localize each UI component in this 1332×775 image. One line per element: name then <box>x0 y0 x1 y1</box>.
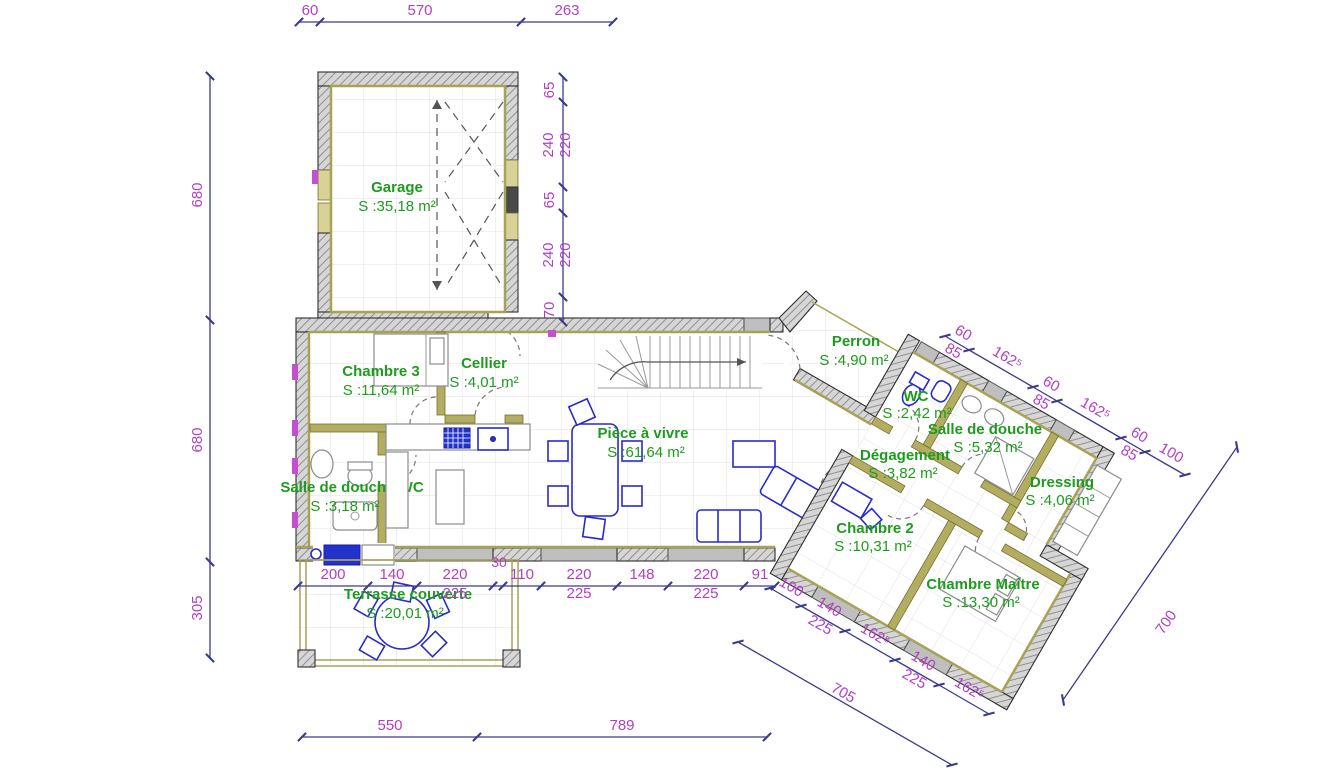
perron-area-label: S :4,90 m² <box>819 352 888 369</box>
dim-b-789: 789 <box>609 717 634 734</box>
dim-s-91: 91 <box>752 566 769 583</box>
garage-west-window-1 <box>318 170 331 200</box>
sofa-straight <box>697 510 761 542</box>
dim-s-225c: 225 <box>693 585 718 602</box>
dim-chain-left: 680 680 305 <box>189 76 210 658</box>
dim-top-60: 60 <box>302 2 319 19</box>
main-north-wall <box>296 318 744 332</box>
dim-gr-240a: 240 <box>540 132 557 157</box>
dim-s-110: 110 <box>510 566 534 583</box>
dining-chair-6 <box>583 517 606 540</box>
window-accent-3 <box>292 458 298 474</box>
dining-chair-2 <box>548 486 568 506</box>
main-south-wall-3 <box>617 548 668 561</box>
garage-west-window-2 <box>318 203 331 233</box>
cellier-area: S :4,01 m² <box>449 374 518 391</box>
main-north-window <box>744 318 770 332</box>
perron-label: Perron <box>832 333 880 350</box>
dim-wt-1625b: 162⁵ <box>1077 394 1113 424</box>
dim-wt-100: 100 <box>1156 439 1186 466</box>
dim-b-550: 550 <box>377 717 402 734</box>
garage-west-wall-upper <box>318 86 331 170</box>
dim-left-680a: 680 <box>189 182 206 207</box>
dim-chain-bottom: 550 789 <box>302 717 767 737</box>
dim-left-680b: 680 <box>189 427 206 452</box>
floor-plan-page: Garage S :35,18 m² Cha <box>0 0 1332 775</box>
dim-s-225b: 225 <box>566 585 591 602</box>
window-accent-2 <box>292 420 298 436</box>
dim-s-225a: 225 <box>442 585 467 602</box>
sofa-1 <box>697 510 761 542</box>
chambre3-area: S :11,64 m² <box>343 382 419 399</box>
chambre2-label: Chambre 2 <box>836 520 914 537</box>
garage-north-wall <box>318 72 518 86</box>
laundry-circle <box>311 549 321 559</box>
living-area: S :61,64 m² <box>607 444 685 461</box>
tv-cabinet <box>733 441 775 467</box>
dim-left-305: 305 <box>189 595 206 620</box>
window-accent-5 <box>312 170 318 184</box>
living-label: Pièce à vivre <box>598 425 689 442</box>
chambre2-area: S :10,31 m² <box>834 538 912 555</box>
stairs <box>598 334 762 390</box>
window-accent-6 <box>548 330 556 337</box>
dining-chair-4 <box>622 486 642 506</box>
dim-wt-60b: 60 <box>1040 373 1063 396</box>
kitchen-island <box>436 470 464 524</box>
main-south-window-1 <box>417 548 493 561</box>
garage-label: Garage <box>371 179 423 196</box>
dim-s-220a: 220 <box>442 566 467 583</box>
dim-s-148: 148 <box>629 566 654 583</box>
garage-east-window-1 <box>505 160 518 187</box>
maitre-area: S :13,30 m² <box>942 594 1020 611</box>
dim-gr-65b: 65 <box>541 192 558 209</box>
garage-east-wall-lower <box>505 240 518 312</box>
kitchen-tall-unit <box>386 452 408 528</box>
wc-area: S :2,42 m² <box>882 405 951 422</box>
dim-s-200: 200 <box>320 566 345 583</box>
sdd-label: Salle de douche <box>928 421 1042 438</box>
garage-area: S :35,18 m² <box>358 198 436 215</box>
maitre-label: Chambre Maître <box>926 576 1039 593</box>
garage-east-pillar <box>505 187 518 213</box>
sddwc-washbasin <box>311 450 333 478</box>
main-south-window-3 <box>668 548 744 561</box>
dim-wt-85c: 85 <box>1118 442 1141 465</box>
main-south-wall-4 <box>744 548 775 561</box>
garage-east-wall-upper <box>505 86 518 160</box>
dim-wt-60c: 60 <box>1128 424 1151 447</box>
cellier-label: Cellier <box>461 355 507 372</box>
dim-s-220b: 220 <box>566 566 591 583</box>
chambre3-pillow <box>430 338 444 364</box>
sdd-area: S :5,32 m² <box>953 439 1022 456</box>
sddwc-toilet-tank <box>348 462 372 470</box>
terrace-area-label: S :20,01 m² <box>366 605 444 622</box>
terrace-post-right <box>503 650 520 667</box>
sddwc-area: S :3,18 m² <box>310 498 379 515</box>
dim-s-30: 30 <box>491 554 507 570</box>
dim-chain-top: 60 570 263 <box>299 2 613 22</box>
degagement-label: Dégagement <box>860 447 950 464</box>
terrace-post-left <box>298 650 315 667</box>
dim-s-140: 140 <box>379 566 404 583</box>
chambre3-label: Chambre 3 <box>342 363 420 380</box>
dressing-label: Dressing <box>1030 474 1094 491</box>
dim-wt-60a: 60 <box>952 322 975 345</box>
degagement-area: S :3,82 m² <box>868 465 937 482</box>
dim-gr-220b: 220 <box>557 242 574 267</box>
dim-700: 700 <box>1152 607 1180 637</box>
cellier-south-wall-1 <box>445 415 475 423</box>
dim-gr-65a: 65 <box>541 82 558 99</box>
washing-machine <box>324 545 360 565</box>
window-accent-4 <box>292 512 298 528</box>
terrace-table <box>375 595 429 649</box>
cellier-south-wall-2 <box>505 415 523 423</box>
floor-plan-drawing: Garage S :35,18 m² Cha <box>0 0 1332 775</box>
wc-label: WC <box>904 388 929 405</box>
dim-s-220c: 220 <box>693 566 718 583</box>
sddwc-east-wall-1 <box>378 432 386 455</box>
dressing-area: S :4,06 m² <box>1025 492 1094 509</box>
dim-gr-220a: 220 <box>557 132 574 157</box>
kitchen-hob-dot <box>491 437 496 442</box>
dim-wt-1625a: 162⁵ <box>989 343 1025 373</box>
dim-gr-240b: 240 <box>540 242 557 267</box>
dim-top-263: 263 <box>554 2 579 19</box>
garage-east-window-2 <box>505 213 518 240</box>
window-accent-1 <box>292 364 298 380</box>
dining-chair-1 <box>548 441 568 461</box>
dryer-machine <box>362 545 394 565</box>
dim-top-570: 570 <box>407 2 432 19</box>
main-south-window-2 <box>541 548 617 561</box>
dim-chain-garage-right: 65 240 220 65 240 220 70 <box>540 77 574 322</box>
dim-705: 705 <box>828 679 858 706</box>
dim-gr-70: 70 <box>541 302 558 319</box>
